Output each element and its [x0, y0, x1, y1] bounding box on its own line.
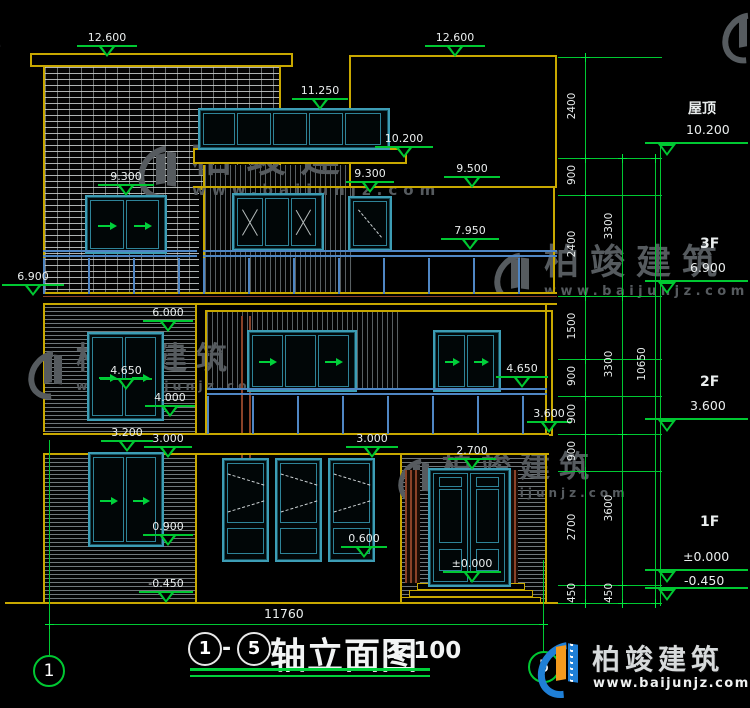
- railing-3f-right: [203, 250, 557, 294]
- title-axis-circle-end: 5: [237, 632, 271, 666]
- railing-2f: [207, 388, 547, 434]
- elev-marker: 4.000: [145, 392, 195, 407]
- pane-casement-dashed: [333, 463, 370, 523]
- elev-marker: 2.700: [448, 445, 496, 460]
- pane-sliding: [438, 335, 465, 387]
- dim-label: 900: [566, 356, 578, 396]
- pane-casement: [237, 198, 263, 246]
- title-underline-2: [190, 675, 430, 677]
- elev-marker: 10.200: [375, 133, 433, 148]
- elev-marker: 3.000: [346, 433, 398, 448]
- title-axis-circle-start: 1: [188, 632, 222, 666]
- roof-slab-left: [30, 53, 293, 67]
- dim-tick: [581, 392, 590, 401]
- window-1f-middle-2: [275, 458, 322, 562]
- dim-tick: [618, 599, 627, 608]
- pane-casement-dashed: [280, 463, 317, 523]
- dim-tick: [618, 430, 627, 439]
- level-label-3f: 3F: [700, 236, 719, 252]
- overall-dim-line: [49, 624, 543, 625]
- title-underline-1: [190, 668, 430, 671]
- elev-marker: 9.300: [98, 171, 154, 186]
- extension-line: [558, 296, 662, 297]
- window-2f-balcony: [433, 330, 501, 392]
- dim-chain-3: [655, 158, 656, 603]
- dim-tick: [581, 154, 590, 163]
- dim-label: 900: [566, 431, 578, 471]
- window-1f-middle-1: [222, 458, 269, 562]
- level-label-roof: 屋顶: [688, 98, 716, 118]
- dim-label: 900: [566, 155, 578, 195]
- extension-line: [558, 57, 662, 58]
- dim-label: 2700: [566, 507, 578, 547]
- dim-chain-2: [622, 158, 623, 603]
- brand-name: 柏竣建筑: [592, 638, 724, 678]
- elev-marker: 3.600: [527, 408, 571, 423]
- door-panel: [439, 489, 462, 543]
- title-separator: -: [222, 636, 231, 661]
- extension-line: [558, 471, 662, 472]
- dim-tick: [581, 581, 590, 590]
- pane-sliding: [126, 200, 159, 249]
- cad-elevation-canvas: 柏竣建筑 www.baijunjz.com 柏竣建筑 www.baijunjz.…: [0, 0, 750, 708]
- brand-url: www.baijunjz.com: [593, 676, 750, 691]
- extension-line: [558, 195, 662, 196]
- dim-chain-1: [585, 57, 586, 603]
- elev-marker: 9.300: [346, 168, 394, 183]
- elev-marker: 7.950: [441, 225, 499, 240]
- pane: [203, 113, 235, 145]
- axis-bubble-1: 1: [33, 655, 65, 687]
- pane-sliding: [252, 335, 283, 387]
- overall-width-text: 11760: [264, 606, 304, 621]
- dim-tick: [581, 53, 590, 62]
- pane-fixed: [227, 528, 264, 554]
- elev-marker: 12.600: [425, 32, 485, 47]
- elev-marker: 11.250: [292, 85, 348, 100]
- dim-tick: [651, 599, 660, 608]
- pane: [309, 113, 343, 145]
- elev-marker: -0.450: [139, 578, 193, 593]
- drawing-scale: 1:100: [388, 638, 461, 664]
- dim-tick: [618, 292, 627, 301]
- dim-tick: [581, 467, 590, 476]
- pane: [265, 198, 289, 246]
- door-panel: [439, 477, 462, 487]
- window-2f-middle: [247, 330, 357, 392]
- pane-sliding: [467, 335, 494, 387]
- pane-casement-dashed: [353, 201, 387, 246]
- level-marker-line: [660, 144, 661, 606]
- elev-marker: 3.000: [144, 433, 192, 448]
- dim-label: 3300: [603, 206, 615, 246]
- dim-tick: [581, 191, 590, 200]
- entry-step-3: [401, 597, 541, 603]
- window-3f-tower: [85, 195, 167, 254]
- dim-label: 2400: [566, 224, 578, 264]
- roof-slab-bulkhead: [193, 148, 407, 164]
- floor-band-line: [43, 296, 557, 297]
- pane: [273, 113, 307, 145]
- pane-casement: [291, 198, 316, 246]
- dim-label: 900: [566, 394, 578, 434]
- level-marker-ground: [645, 577, 748, 589]
- watermark-logo-icon: [28, 344, 76, 400]
- dim-tick: [618, 581, 627, 590]
- railing-3f-left: [43, 250, 197, 294]
- level-marker-2f: [645, 408, 748, 420]
- dim-tick: [45, 620, 54, 629]
- pane-sliding: [90, 200, 124, 249]
- door-pilaster-left: [405, 470, 420, 583]
- dim-label: 3300: [603, 344, 615, 384]
- pane-casement-dashed: [227, 463, 264, 523]
- elev-marker: 4.650: [496, 363, 548, 378]
- level-marker-1f: [645, 559, 748, 571]
- watermark-logo-icon: [138, 138, 192, 202]
- dim-tick: [539, 620, 548, 629]
- dim-tick: [581, 355, 590, 364]
- dim-tick: [581, 599, 590, 608]
- level-label-2f: 2F: [700, 374, 719, 390]
- elev-marker: 0.600: [341, 533, 387, 548]
- elev-marker: 12.600: [77, 32, 137, 47]
- dim-label: 450: [603, 573, 615, 613]
- dim-label: 1500: [566, 306, 578, 346]
- elev-marker: 6.000: [143, 307, 193, 322]
- level-label-1f: 1F: [700, 514, 719, 530]
- elev-marker: ±0.000: [443, 558, 501, 573]
- pane: [237, 113, 271, 145]
- elev-marker: 4.650: [100, 365, 152, 380]
- elev-marker: 9.500: [444, 163, 500, 178]
- dim-label: 2400: [566, 86, 578, 126]
- door-panel: [476, 489, 499, 543]
- entry-step-2: [409, 590, 533, 597]
- window-3f-casement: [232, 193, 324, 251]
- pane: [285, 335, 316, 387]
- pane-fixed: [280, 528, 317, 554]
- dim-tick: [581, 430, 590, 439]
- pane-sliding: [93, 457, 124, 542]
- dim-label: 10650: [636, 344, 648, 384]
- dim-tick: [581, 292, 590, 301]
- window-3f-single: [348, 196, 392, 251]
- dim-label: 450: [566, 573, 578, 613]
- dim-tick: [618, 154, 627, 163]
- dim-tick: [651, 154, 660, 163]
- brand-logo: 柏竣建筑 www.baijunjz.com: [540, 632, 745, 698]
- elev-marker: 6.900: [2, 271, 64, 286]
- elev-marker: 0.900: [143, 521, 193, 536]
- pane-sliding: [318, 335, 349, 387]
- dim-label: 3600: [603, 488, 615, 528]
- window-band-bulkhead: [198, 108, 390, 150]
- level-marker-roof: [645, 132, 748, 144]
- door-panel: [476, 477, 499, 487]
- level-marker-3f: [645, 270, 748, 282]
